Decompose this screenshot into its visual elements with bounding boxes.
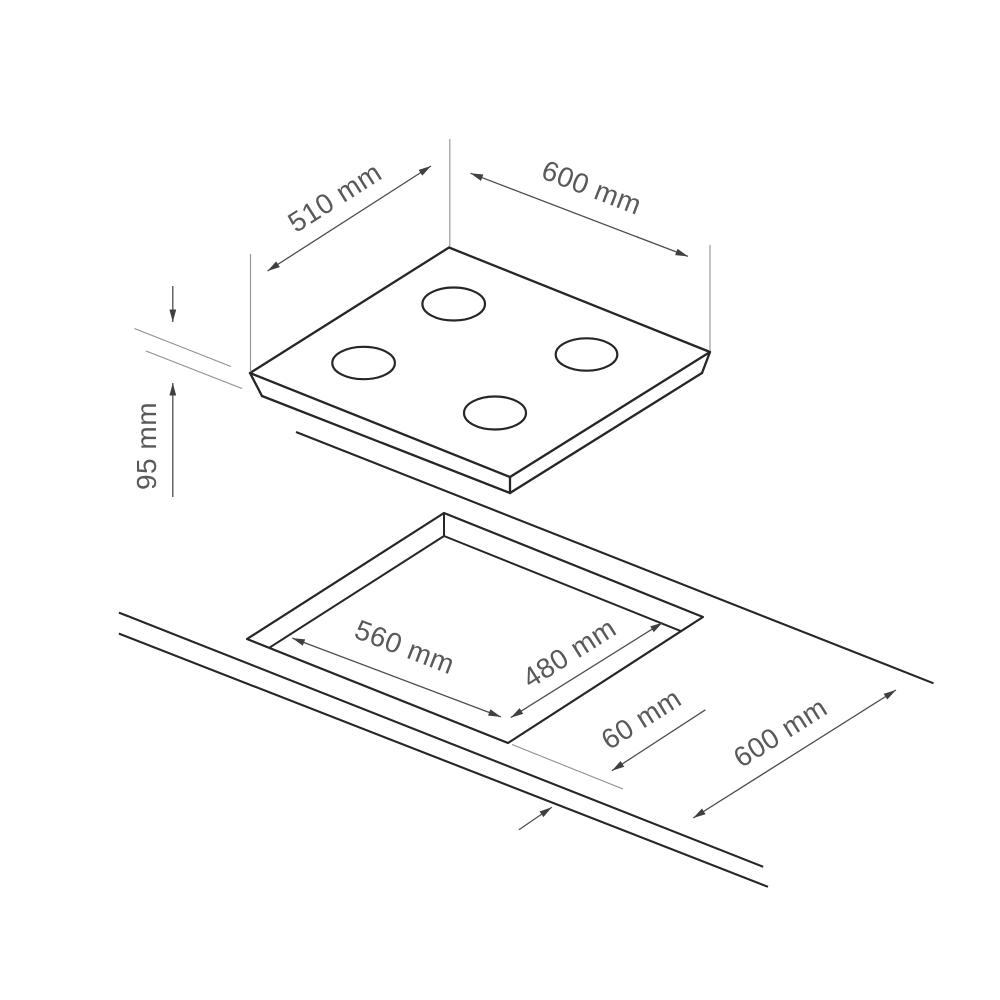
svg-text:95 mm: 95 mm [131,402,162,490]
